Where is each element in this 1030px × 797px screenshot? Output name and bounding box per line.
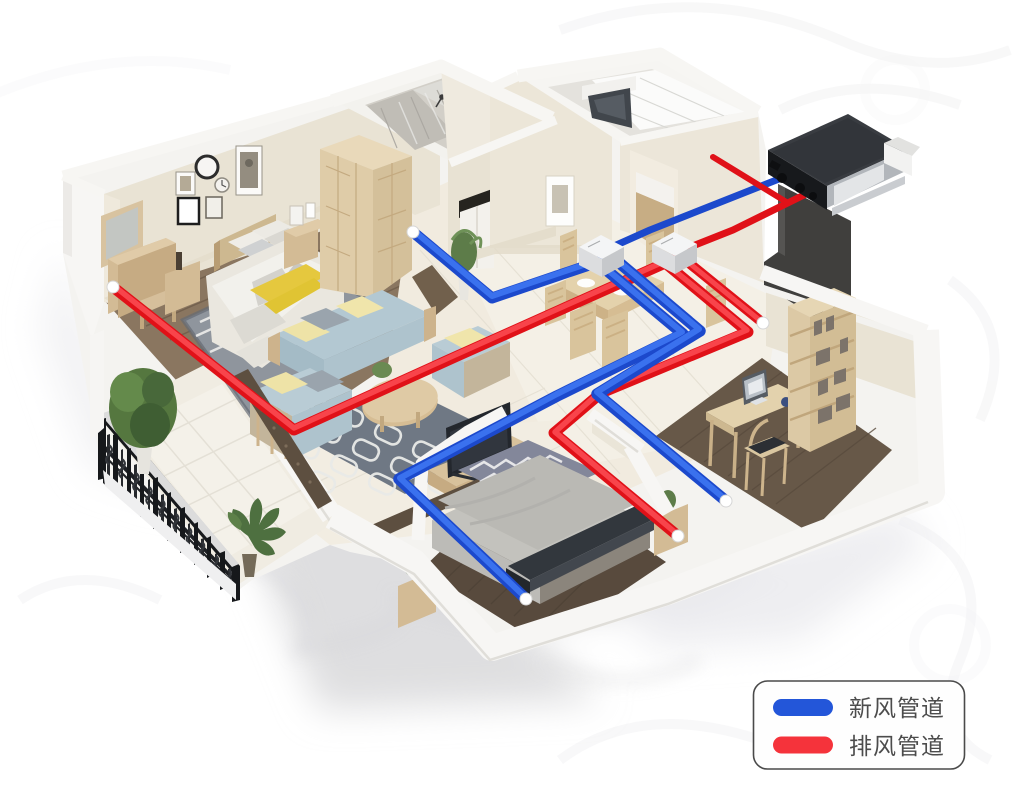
svg-text:新风管道: 新风管道 <box>849 695 945 721</box>
svg-text:排风管道: 排风管道 <box>849 733 945 759</box>
